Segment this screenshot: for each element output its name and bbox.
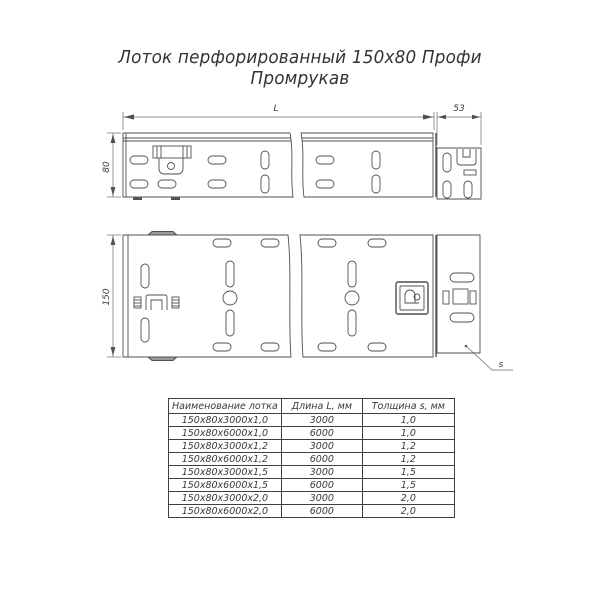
cell-name: 150х80х6000х1,0 — [169, 427, 282, 440]
perforation-slot — [213, 239, 231, 247]
keyhole-cutout — [464, 170, 476, 175]
side-view-body-left — [123, 133, 293, 200]
table-row: 150х80х6000х1,2 6000 1,2 — [169, 453, 455, 466]
brand-logo-stamp — [396, 282, 428, 314]
top-view-connector-end — [437, 235, 480, 353]
arrowhead-icon — [438, 115, 446, 119]
perforation-slot — [450, 273, 474, 282]
arrowhead-icon — [124, 114, 134, 119]
dim-height-label: 80 — [102, 161, 112, 173]
perforation-slot — [464, 181, 472, 198]
perforation-slot — [450, 313, 474, 322]
perforation-slot — [372, 151, 380, 169]
mounting-tab — [171, 198, 180, 200]
edge-tab — [148, 357, 177, 361]
perforation-slot — [226, 310, 234, 336]
drawing-sheet: Лоток перфорированный 150х80 Профи Промр… — [0, 0, 600, 600]
perforation-slot — [261, 239, 279, 247]
cell-thickness: 1,0 — [362, 427, 454, 440]
cell-thickness: 1,5 — [362, 466, 454, 479]
spec-table: Наименование лотка Длина L, мм Толщина s… — [168, 398, 455, 518]
perforation-slot — [141, 318, 149, 342]
arrowhead-icon — [111, 347, 116, 356]
arrowhead-icon — [111, 236, 116, 245]
col-header-thickness: Толщина s, мм — [362, 399, 454, 414]
perforation-slot — [261, 151, 269, 169]
perforation-slot — [213, 343, 231, 351]
cell-thickness: 2,0 — [362, 505, 454, 518]
cell-thickness: 1,0 — [362, 414, 454, 427]
perforation-slot — [316, 156, 334, 164]
cell-name: 150х80х3000х1,0 — [169, 414, 282, 427]
perforation-slot — [443, 181, 451, 198]
perforation-slot — [443, 153, 451, 172]
cell-length: 6000 — [281, 505, 362, 518]
table-row: 150х80х3000х2,0 3000 2,0 — [169, 492, 455, 505]
perforation-slot — [130, 156, 148, 164]
perforation-hole — [223, 291, 237, 305]
cell-length: 6000 — [281, 427, 362, 440]
cell-length: 3000 — [281, 414, 362, 427]
arrowhead-icon — [111, 134, 116, 143]
perforation-slot — [368, 239, 386, 247]
table-row: 150х80х3000х1,2 3000 1,2 — [169, 440, 455, 453]
dim-width-label: 150 — [102, 288, 112, 305]
cell-length: 6000 — [281, 479, 362, 492]
table-row: 150х80х3000х1,0 3000 1,0 — [169, 414, 455, 427]
cell-name: 150х80х3000х2,0 — [169, 492, 282, 505]
cell-thickness: 1,2 — [362, 440, 454, 453]
perforation-slot — [368, 343, 386, 351]
table-row: 150х80х6000х1,0 6000 1,0 — [169, 427, 455, 440]
table-row: 150х80х6000х1,5 6000 1,5 — [169, 479, 455, 492]
perforation-slot — [316, 180, 334, 188]
perforation-slot — [261, 343, 279, 351]
perforation-slot — [348, 261, 356, 287]
dim-connector-length — [437, 112, 481, 145]
connector-cutout — [453, 289, 468, 304]
arrowhead-icon — [423, 114, 433, 119]
perforation-hole — [345, 291, 359, 305]
col-header-length: Длина L, мм — [281, 399, 362, 414]
perforation-slot — [318, 343, 336, 351]
top-view-body-right — [300, 235, 436, 357]
connector-cutout — [443, 291, 449, 304]
connector-cutout — [470, 291, 476, 304]
perforation-slot — [158, 180, 176, 188]
perforation-slot — [141, 264, 149, 288]
perforation-slot — [318, 239, 336, 247]
perforation-slot — [208, 156, 226, 164]
thickness-leader — [465, 345, 513, 370]
cell-length: 3000 — [281, 492, 362, 505]
dim-length — [123, 112, 434, 130]
cell-thickness: 1,5 — [362, 479, 454, 492]
dim-length-label: L — [273, 104, 278, 114]
table-row: 150х80х6000х2,0 6000 2,0 — [169, 505, 455, 518]
top-view-body-left — [123, 232, 291, 361]
cell-name: 150х80х6000х1,2 — [169, 453, 282, 466]
cell-name: 150х80х3000х1,5 — [169, 466, 282, 479]
side-view-body-right — [301, 133, 436, 197]
dim-connector-label: 53 — [453, 104, 465, 114]
table-row: 150х80х3000х1,5 3000 1,5 — [169, 466, 455, 479]
cell-name: 150х80х6000х1,5 — [169, 479, 282, 492]
perforation-slot — [226, 261, 234, 287]
col-header-name: Наименование лотка — [169, 399, 282, 414]
cell-length: 3000 — [281, 440, 362, 453]
arrowhead-icon — [111, 187, 116, 196]
latch-rivet — [168, 163, 175, 170]
ground-clamp-detail — [134, 295, 179, 310]
side-view-connector-end — [437, 148, 481, 199]
edge-tab — [148, 232, 177, 236]
perforation-slot — [372, 175, 380, 193]
perforation-slot — [261, 175, 269, 193]
top-view: 150 — [102, 232, 513, 371]
mounting-tab — [133, 198, 142, 200]
thickness-label: s — [499, 360, 504, 370]
cell-length: 6000 — [281, 453, 362, 466]
keyhole-cutout — [457, 149, 476, 165]
cell-name: 150х80х3000х1,2 — [169, 440, 282, 453]
perforation-slot — [208, 180, 226, 188]
side-view: L 53 80 — [102, 104, 481, 200]
cell-length: 3000 — [281, 466, 362, 479]
latch-detail — [153, 146, 191, 174]
cell-thickness: 1,2 — [362, 453, 454, 466]
perforation-slot — [130, 180, 148, 188]
spec-table-header-row: Наименование лотка Длина L, мм Толщина s… — [169, 399, 455, 414]
arrowhead-icon — [472, 115, 480, 119]
perforation-slot — [348, 310, 356, 336]
cell-thickness: 2,0 — [362, 492, 454, 505]
cell-name: 150х80х6000х2,0 — [169, 505, 282, 518]
